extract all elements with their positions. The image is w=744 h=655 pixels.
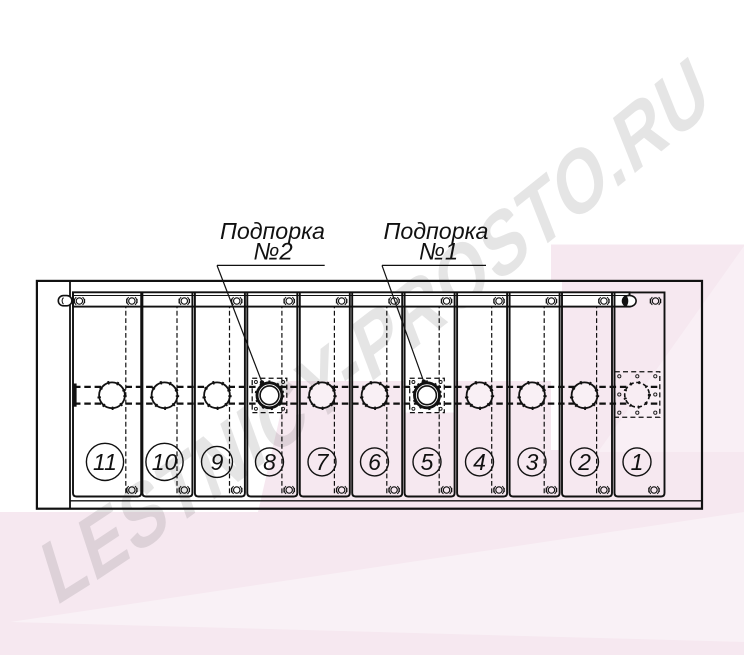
svg-text:№1: №1	[419, 239, 458, 266]
svg-text:3: 3	[526, 449, 539, 475]
svg-text:8: 8	[263, 449, 276, 475]
svg-text:5: 5	[421, 449, 434, 475]
svg-text:4: 4	[473, 449, 486, 475]
svg-text:№2: №2	[253, 239, 292, 266]
svg-text:11: 11	[93, 449, 117, 475]
svg-text:7: 7	[316, 449, 330, 475]
svg-text:2: 2	[577, 449, 591, 475]
svg-text:9: 9	[211, 449, 224, 475]
svg-text:6: 6	[368, 449, 381, 475]
svg-text:1: 1	[631, 449, 644, 475]
svg-text:10: 10	[152, 449, 178, 475]
